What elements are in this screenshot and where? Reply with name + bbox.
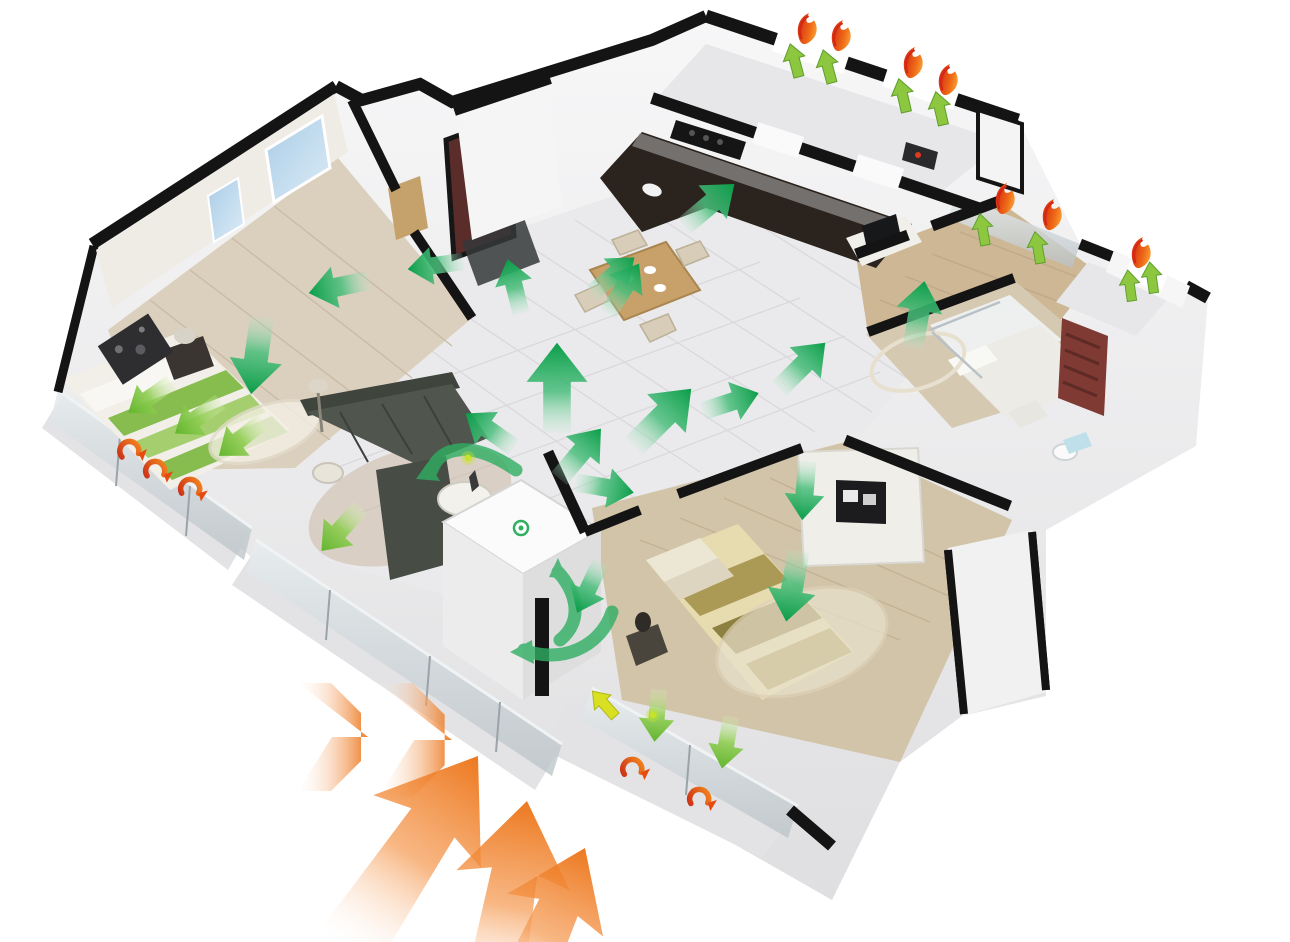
apartment-ventilation-illustration bbox=[0, 0, 1290, 942]
side-table bbox=[313, 463, 343, 483]
unit-indicator-dot bbox=[465, 455, 472, 462]
fresh-air-burst-arrow bbox=[298, 683, 368, 791]
floorplan-canvas bbox=[0, 0, 1290, 942]
unit-indicator-dot bbox=[650, 712, 657, 719]
wall-block-ne bbox=[978, 110, 1022, 192]
table-lamp bbox=[174, 328, 196, 344]
